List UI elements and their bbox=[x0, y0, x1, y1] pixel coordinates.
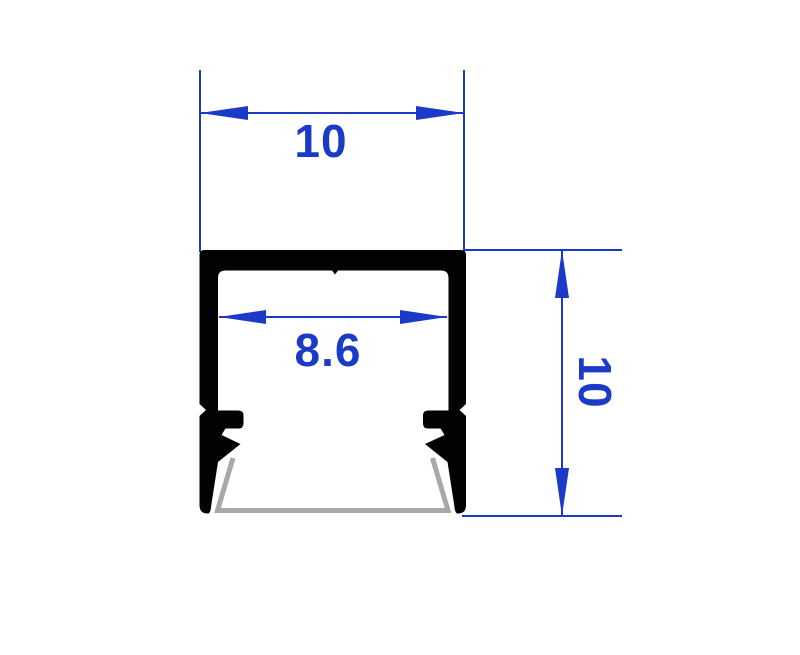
arrow-right-icon bbox=[416, 106, 464, 120]
arrow-left-icon bbox=[219, 310, 266, 324]
outer-width-label: 10 bbox=[294, 118, 347, 164]
profile-drawing bbox=[0, 0, 800, 655]
diffuser-line bbox=[218, 458, 449, 511]
inner-width-dimension bbox=[219, 310, 447, 324]
arrow-down-icon bbox=[555, 468, 569, 516]
technical-drawing-canvas: 10 8.6 10 bbox=[0, 0, 800, 655]
profile-outline bbox=[200, 250, 467, 514]
arrow-right-icon bbox=[400, 310, 447, 324]
arrow-up-icon bbox=[555, 250, 569, 298]
inner-width-label: 8.6 bbox=[295, 327, 362, 373]
arrow-left-icon bbox=[200, 106, 248, 120]
height-label: 10 bbox=[572, 355, 618, 408]
